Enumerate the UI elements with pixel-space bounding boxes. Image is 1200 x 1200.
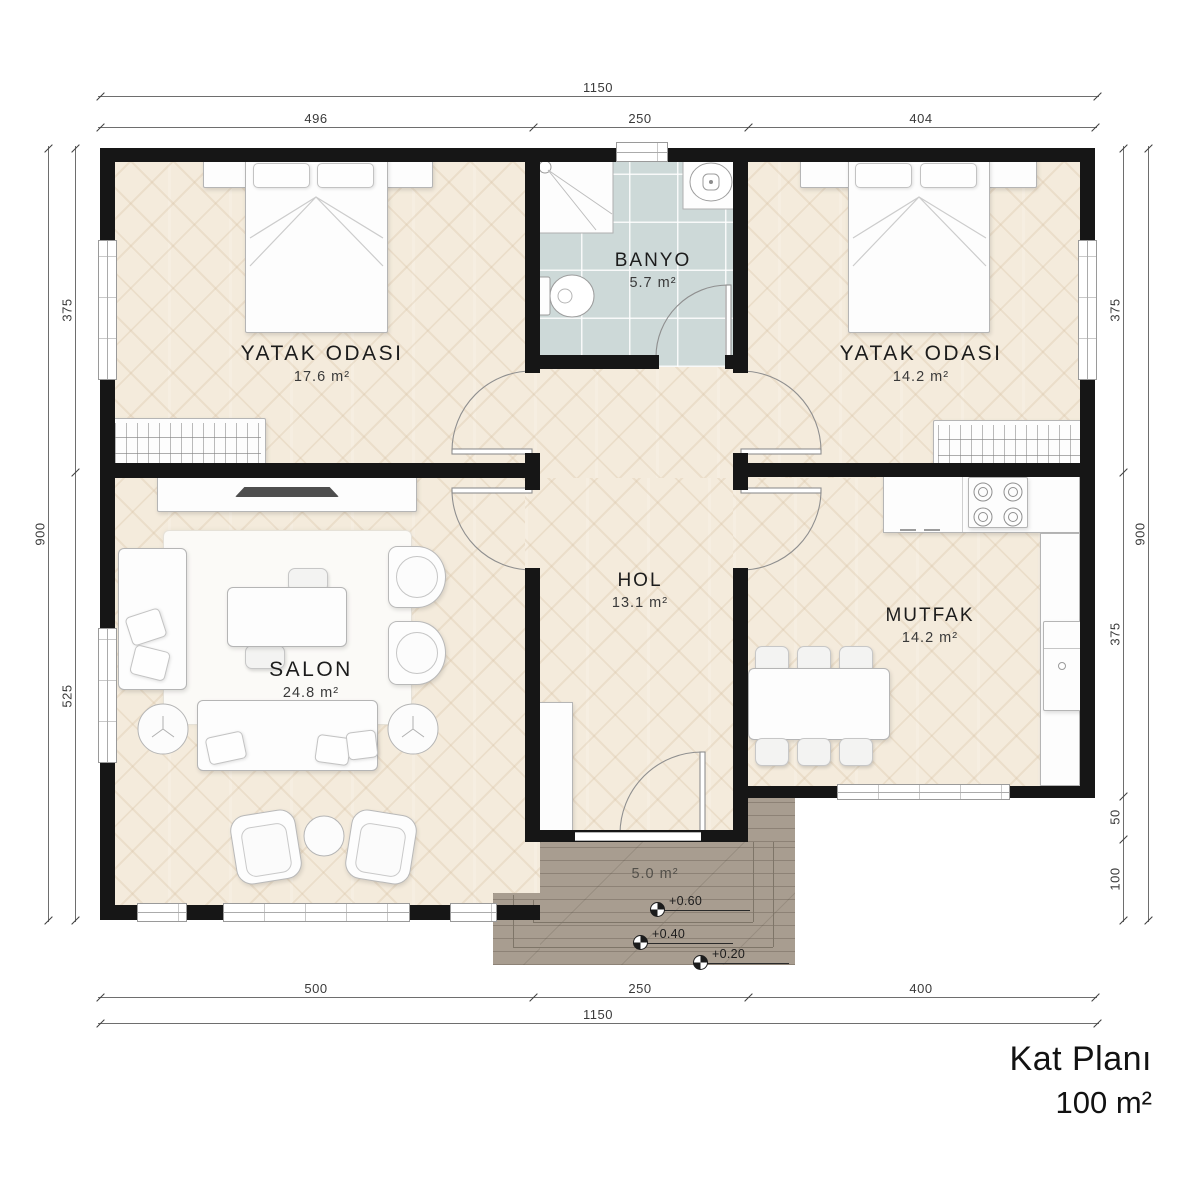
- cabinet-handle: [924, 529, 940, 531]
- room-name: BANYO: [615, 250, 692, 272]
- tv: [235, 487, 339, 497]
- wardrobe-hangers: [115, 423, 261, 463]
- dim-label: 250: [628, 111, 651, 126]
- wall-interior-right-a: [733, 148, 748, 373]
- lounge-cushion: [240, 822, 293, 879]
- dim-label: 100: [1108, 867, 1123, 890]
- wall-bathroom-bottom-stub: [725, 355, 735, 369]
- elevation-value: +0.40: [652, 927, 685, 941]
- armchair-cushion: [396, 556, 438, 598]
- wall-bathroom-bottom: [533, 355, 659, 369]
- lounge-chair: [228, 807, 304, 886]
- window-kitchen-bottom: [837, 784, 1010, 800]
- fridge-divider: [1044, 648, 1082, 649]
- coffee-table: [227, 587, 347, 647]
- entry-door-threshold: [575, 832, 701, 841]
- wall-interior-left-c: [525, 568, 540, 842]
- dim-line-left-segments: [75, 146, 76, 922]
- pillow: [920, 163, 977, 188]
- dim-label: 250: [628, 981, 651, 996]
- room-name: HOL: [612, 570, 668, 592]
- step-edge: [753, 842, 754, 922]
- cabinet-handle: [900, 529, 916, 531]
- window-bathroom-top: [616, 142, 668, 162]
- room-name: MUTFAK: [885, 605, 974, 627]
- step-edge: [533, 922, 753, 923]
- pillow: [317, 163, 374, 188]
- hall-cabinet: [537, 702, 573, 832]
- room-label-mutfak: MUTFAK 14.2 m²: [885, 605, 974, 646]
- dining-table: [748, 668, 890, 740]
- room-area: 24.8 m²: [269, 685, 353, 701]
- dim-line-bottom-overall: [98, 1023, 1099, 1024]
- pillow: [855, 163, 912, 188]
- elevation-marker: +0.40: [633, 926, 733, 944]
- dim-label: 525: [60, 684, 75, 707]
- window-salon-bottom-3: [450, 903, 497, 922]
- counter-divider: [962, 474, 963, 532]
- room-name: SALON: [269, 658, 353, 682]
- elevation-symbol-icon: [693, 955, 708, 970]
- step-edge: [773, 842, 774, 947]
- room-label-bedroom-right: YATAK ODASI 14.2 m²: [840, 342, 1003, 385]
- room-area: 17.6 m²: [241, 369, 404, 385]
- dining-chair: [839, 738, 873, 766]
- window-bedroom-right: [1078, 240, 1097, 380]
- dim-label: 50: [1108, 809, 1123, 824]
- dim-label: 500: [304, 981, 327, 996]
- elevation-value: +0.60: [669, 894, 702, 908]
- room-area: 5.7 m²: [615, 275, 692, 291]
- dim-label: 496: [304, 111, 327, 126]
- room-label-salon: SALON 24.8 m²: [269, 658, 353, 701]
- wardrobe-hangers: [938, 425, 1082, 465]
- pillow: [253, 163, 310, 188]
- window-bedroom-left: [98, 240, 117, 380]
- wall-interior-left-a: [525, 148, 540, 373]
- room-area: 13.1 m²: [612, 595, 668, 611]
- dim-label: 900: [1133, 522, 1148, 545]
- dim-label: 375: [1108, 298, 1123, 321]
- plan-title-block: Kat Planı 100 m²: [1010, 1040, 1152, 1121]
- dim-label: 375: [1108, 622, 1123, 645]
- step-edge: [513, 895, 514, 947]
- dining-chair: [755, 738, 789, 766]
- room-label-banyo: BANYO 5.7 m²: [615, 250, 692, 291]
- dim-label: 400: [909, 981, 932, 996]
- room-area: 14.2 m²: [840, 369, 1003, 385]
- dining-chair: [797, 738, 831, 766]
- room-label-bedroom-left: YATAK ODASI 17.6 m²: [241, 342, 404, 385]
- dim-line-bottom-segments: [98, 997, 1097, 998]
- stove: [968, 477, 1028, 528]
- elevation-symbol-icon: [650, 902, 665, 917]
- plan-total-area: 100 m²: [1010, 1085, 1152, 1121]
- elevation-symbol-icon: [633, 935, 648, 950]
- dim-line-right-overall: [1148, 146, 1149, 922]
- armchair-cushion: [396, 632, 438, 674]
- plan-title: Kat Planı: [1010, 1040, 1152, 1079]
- elevation-value: +0.20: [712, 947, 745, 961]
- dim-line-top-segments: [98, 127, 1097, 128]
- wardrobe: [110, 418, 266, 468]
- wall-bedroom-salon: [100, 463, 540, 478]
- room-label-hol: HOL 13.1 m²: [612, 570, 668, 611]
- dim-label: 900: [33, 522, 48, 545]
- lounge-cushion: [354, 822, 407, 879]
- window-salon-bottom-1: [137, 903, 187, 922]
- dim-line-top-overall: [98, 96, 1099, 97]
- elevation-marker: +0.20: [693, 946, 789, 964]
- room-name: YATAK ODASI: [241, 342, 404, 366]
- window-salon-bottom-2: [223, 903, 410, 922]
- floor-plan-canvas: YATAK ODASI 17.6 m² BANYO 5.7 m² YATAK O…: [0, 0, 1200, 1200]
- lounge-chair: [343, 807, 419, 886]
- wall-bedroom-kitchen: [733, 463, 1095, 477]
- window-salon-left: [98, 628, 117, 763]
- dim-label: 375: [60, 298, 75, 321]
- dim-line-right-segments: [1123, 146, 1124, 922]
- room-name: YATAK ODASI: [840, 342, 1003, 366]
- wall-interior-right-c: [733, 568, 748, 842]
- elevation-marker: +0.60: [650, 893, 750, 911]
- dim-label: 1150: [583, 1007, 613, 1022]
- wall-exterior-top: [100, 148, 1095, 162]
- dim-label: 1150: [583, 80, 613, 95]
- throw-pillow: [345, 729, 378, 760]
- entry-porch-notch: [748, 798, 795, 842]
- fridge-handle: [1058, 662, 1066, 670]
- room-area: 14.2 m²: [885, 630, 974, 646]
- porch-area-label: 5.0 m²: [631, 866, 678, 882]
- dim-line-left-overall: [48, 146, 49, 922]
- dim-label: 404: [909, 111, 932, 126]
